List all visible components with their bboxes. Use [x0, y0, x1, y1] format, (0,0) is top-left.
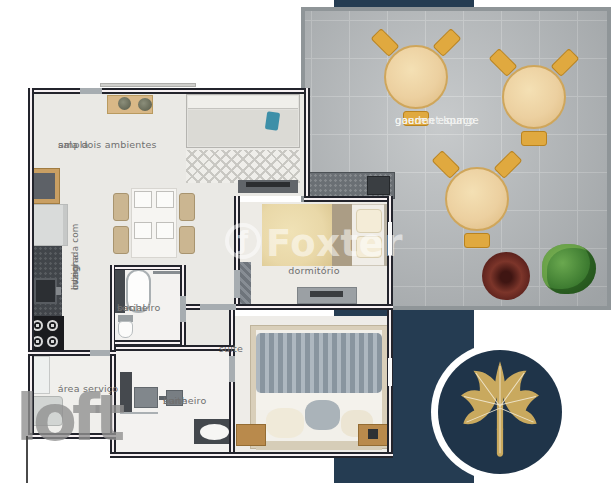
window [387, 358, 393, 386]
dining-chair [156, 191, 174, 208]
door-opening [229, 356, 235, 382]
foxter-initial: ƒ [238, 227, 248, 255]
dining-chair [179, 226, 195, 254]
room-label-kitchen: cozinha integrada com living [70, 190, 106, 290]
door-opening [234, 270, 240, 298]
accent-pillow [265, 111, 280, 131]
burner [47, 336, 58, 347]
dining-chair [134, 191, 152, 208]
herringbone-rug [186, 150, 300, 183]
entrance-door [80, 88, 102, 94]
lamp [368, 429, 378, 439]
brand-badge [431, 343, 569, 481]
label-line: living [70, 265, 81, 290]
door-opening [180, 296, 186, 322]
dining-chair [113, 226, 129, 254]
shower-glass [120, 412, 158, 414]
sofa-back-cushions [188, 96, 298, 109]
wall [304, 88, 310, 202]
wall [229, 452, 393, 458]
room-label-suite: suite [206, 344, 256, 355]
nightstand [236, 424, 266, 446]
fig-leaf-icon [461, 361, 539, 463]
cabinet-interior [33, 173, 55, 199]
burner [47, 320, 58, 331]
dining-chair [113, 193, 129, 221]
loft-watermark: loft [16, 388, 120, 448]
tv [246, 182, 290, 187]
wall [304, 196, 393, 202]
wall [28, 88, 310, 94]
dining-chair [156, 222, 174, 239]
listing-image: gaeden espaço gourmet lounge [0, 0, 611, 483]
kitchen-sink [34, 278, 57, 304]
pillow [305, 400, 340, 430]
badge-circle [438, 350, 562, 474]
plan-edge-line [26, 436, 28, 483]
knit-blanket [256, 333, 382, 393]
potted-plant [138, 98, 152, 111]
wall [110, 265, 115, 345]
faucet [56, 287, 61, 295]
door-opening [90, 350, 110, 356]
label-line: social [117, 303, 145, 314]
wall [110, 452, 235, 458]
dining-chair [179, 193, 195, 221]
refrigerator [28, 204, 68, 246]
towel-bar [153, 271, 181, 274]
sofa-seat [188, 110, 298, 146]
foxter-wordmark: Foxter [266, 220, 403, 268]
label-line: sala dois ambientes [58, 140, 157, 151]
label-line: suite [163, 396, 187, 407]
potted-plant [118, 97, 131, 110]
wall [110, 265, 186, 270]
shower [134, 387, 158, 408]
vanity-sink [200, 424, 229, 440]
foxter-watermark: ƒ Foxter [220, 218, 430, 270]
pillow [266, 408, 304, 438]
toilet [118, 321, 133, 338]
window-sill [100, 83, 196, 87]
door-opening [200, 304, 236, 310]
dining-chair [134, 222, 152, 239]
foxter-logo-icon: ƒ [225, 223, 261, 259]
tv [310, 291, 343, 297]
